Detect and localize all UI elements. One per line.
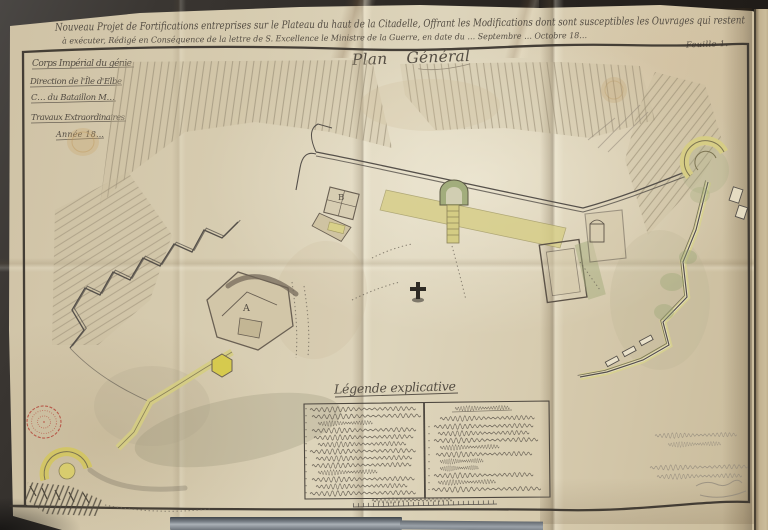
legend-box <box>304 401 550 499</box>
plan-drawing: Nouveau Projet de Fortifications entrepr… <box>0 0 768 530</box>
outworks <box>729 187 748 219</box>
approval-notes <box>650 433 748 498</box>
ink-stain <box>67 128 99 156</box>
cross-marker <box>410 282 426 303</box>
metal-weight-bar <box>170 517 402 530</box>
work-b <box>310 185 359 243</box>
photo-of-fortification-plan: Nouveau Projet de Fortifications entrepr… <box>0 0 768 530</box>
metal-weight-bar-edge <box>400 520 543 530</box>
title-line-1: Nouveau Projet de Fortifications entrepr… <box>54 14 746 33</box>
archive-stamp <box>25 404 63 440</box>
scale-bar <box>353 498 497 507</box>
document-title: Nouveau Projet de Fortifications entrepr… <box>54 14 746 45</box>
bastion-a-label: A <box>242 303 250 314</box>
legend-divider <box>424 403 425 498</box>
inner-work <box>585 210 626 262</box>
signature <box>696 480 746 497</box>
work-b-label: B <box>338 193 344 203</box>
northeast-tower <box>681 141 729 194</box>
legend-panel: Légende explicative <box>304 378 550 507</box>
